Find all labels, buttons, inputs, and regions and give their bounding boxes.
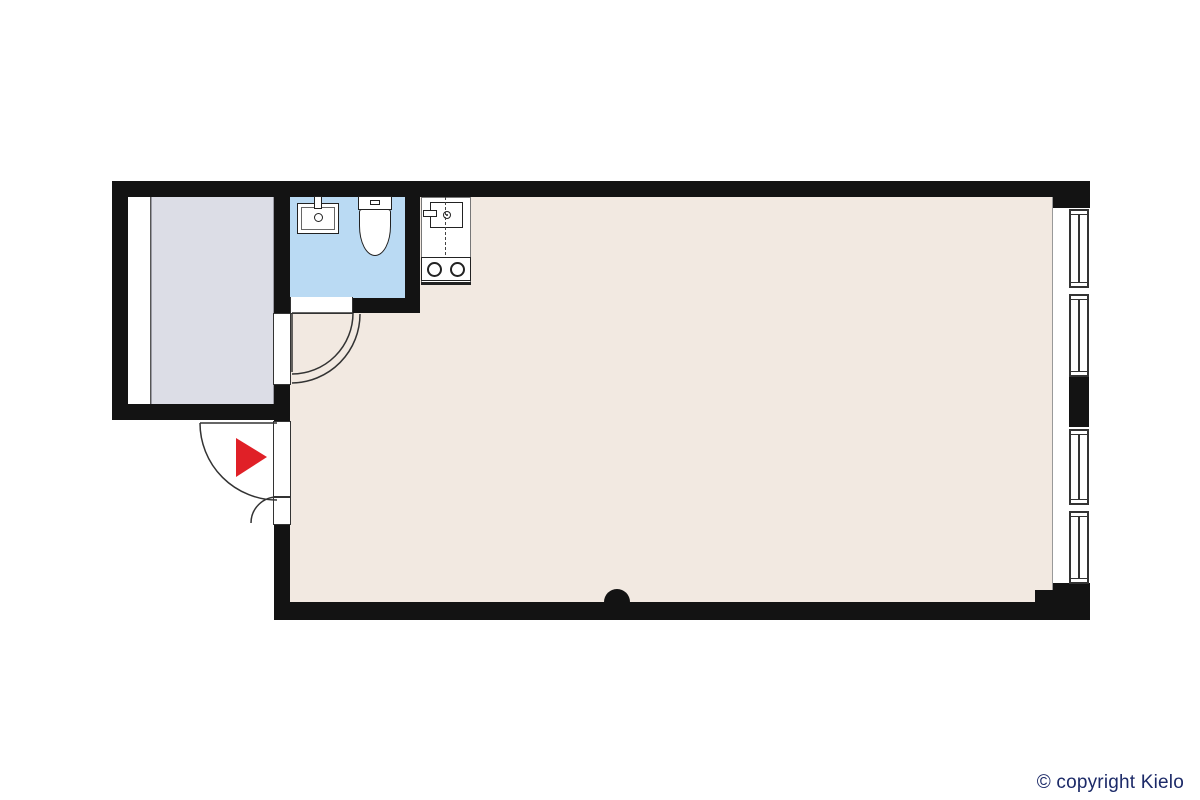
bathroom-door-swing — [292, 313, 353, 374]
bathroom-door-leaf — [292, 313, 353, 372]
copyright-text: © copyright Kielo — [1037, 772, 1184, 794]
entrance-door-swing-small — [251, 497, 277, 523]
door-swings-overlay — [0, 0, 1200, 800]
entrance-arrow-icon — [236, 438, 267, 477]
wall-dot-icon — [604, 589, 630, 602]
floor-plan: © copyright Kielo — [0, 0, 1200, 800]
